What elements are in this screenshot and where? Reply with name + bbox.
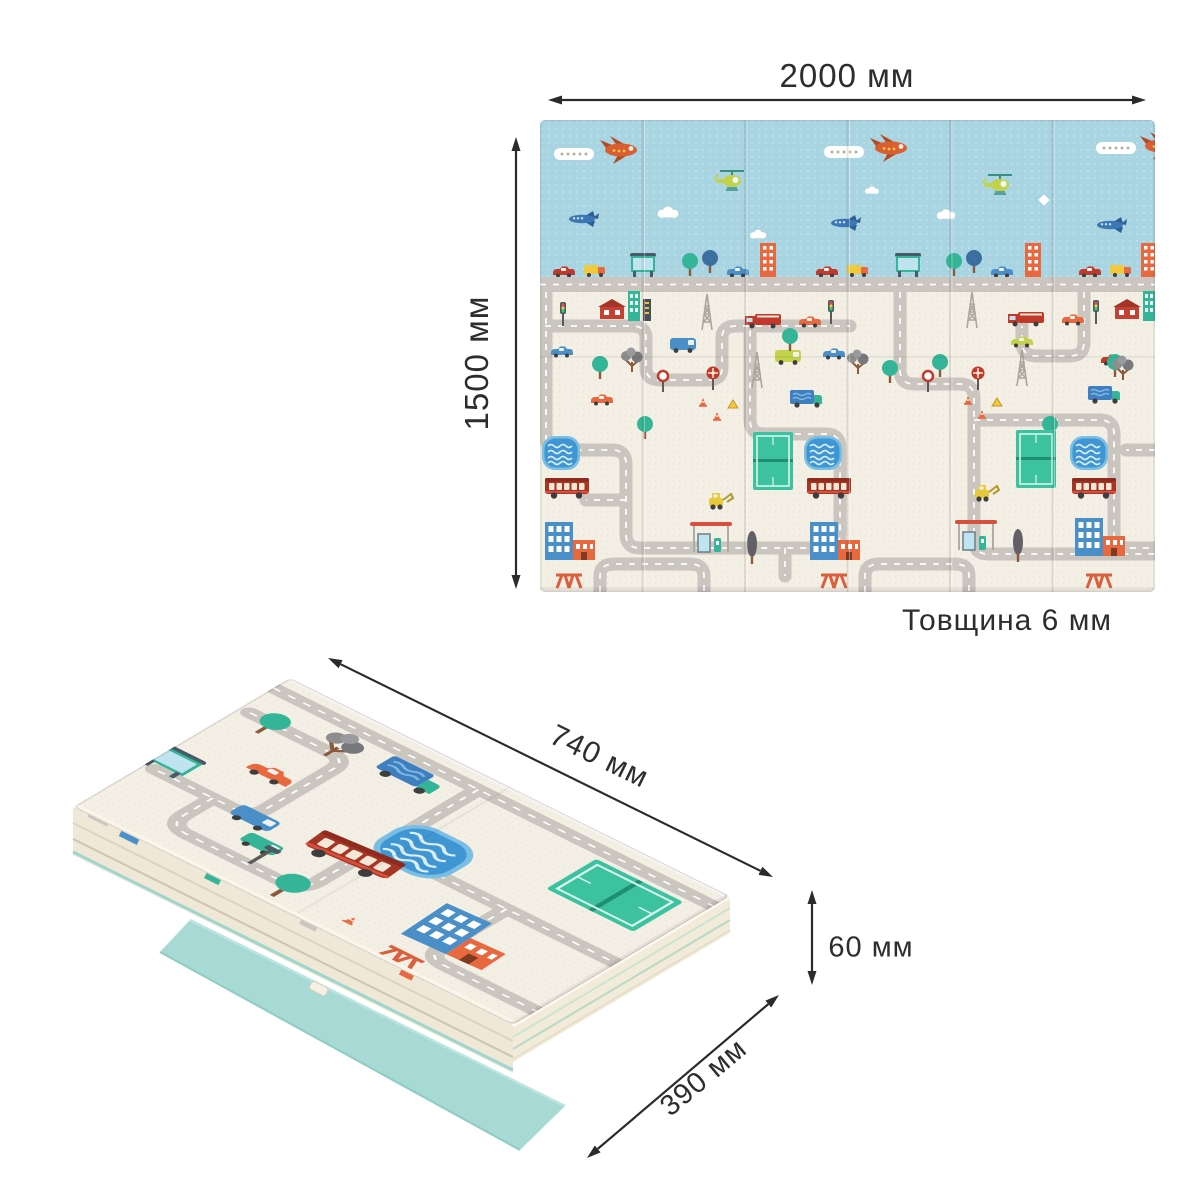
dimension-label-height-1500mm: 1500 мм <box>458 296 496 431</box>
dimension-label-width-2000mm: 2000 мм <box>780 57 915 95</box>
figure-art <box>0 0 1200 1200</box>
pool-icon <box>542 436 580 470</box>
tennis-court-icon <box>753 432 793 490</box>
dimension-arrow-60 <box>808 890 817 985</box>
folded-mat-illustration <box>67 675 730 1150</box>
dimension-arrow-2000 <box>548 96 1146 105</box>
flat-mat-illustration <box>532 120 1177 592</box>
dimension-label-folded-height-60mm: 60 мм <box>828 932 913 965</box>
thickness-label: Товщина 6 мм <box>902 604 1112 638</box>
product-dimensions-figure: 2000 мм 1500 мм Товщина 6 мм 740 мм 60 м… <box>0 0 1200 1200</box>
dimension-arrow-1500 <box>512 137 521 589</box>
